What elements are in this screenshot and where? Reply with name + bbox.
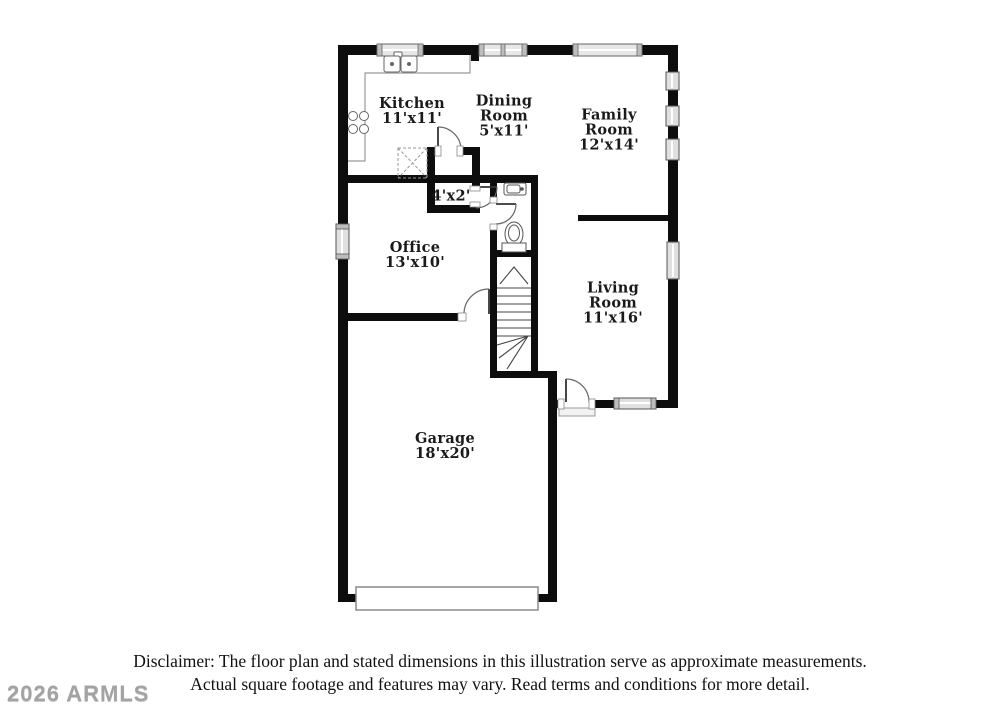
office-bottom-wall bbox=[338, 313, 465, 321]
disclaimer-line1: Disclaimer: The floor plan and stated di… bbox=[0, 650, 1000, 673]
family-window bbox=[573, 44, 642, 56]
stair-left-wall bbox=[490, 224, 497, 378]
garage-dims: 18'x20' bbox=[390, 446, 500, 461]
room-label-family: Family Room 12'x14' bbox=[577, 108, 641, 153]
garage-name: Garage bbox=[390, 431, 500, 446]
dining-name: Dining Room bbox=[472, 94, 536, 124]
office-name: Office bbox=[360, 240, 470, 255]
room-label-closet: 4'x2' bbox=[396, 189, 506, 204]
dining-dims: 5'x11' bbox=[472, 124, 536, 139]
family-dims: 12'x14' bbox=[577, 138, 641, 153]
pantry-cabinet bbox=[398, 148, 427, 178]
family-living-wall bbox=[578, 215, 668, 221]
garage-door bbox=[356, 587, 538, 610]
living-dims: 11'x16' bbox=[581, 311, 645, 326]
wall-stub bbox=[471, 45, 479, 61]
powder-door bbox=[496, 204, 516, 224]
disclaimer-line2: Actual square footage and features may v… bbox=[0, 673, 1000, 696]
closet-dims: 4'x2' bbox=[396, 189, 506, 204]
toilet bbox=[502, 222, 526, 252]
kitchen-name: Kitchen bbox=[357, 96, 467, 111]
room-label-living: Living Room 11'x16' bbox=[581, 281, 645, 326]
office-window bbox=[336, 224, 349, 259]
office-door bbox=[464, 289, 489, 314]
left-wall bbox=[338, 45, 348, 602]
living-name: Living Room bbox=[581, 281, 645, 311]
office-dims: 13'x10' bbox=[360, 255, 470, 270]
kitchen-dims: 11'x11' bbox=[357, 111, 467, 126]
dining-window bbox=[479, 44, 527, 56]
family-name: Family Room bbox=[577, 108, 641, 138]
family-side-windows bbox=[666, 72, 679, 160]
stair-right-wall bbox=[531, 175, 538, 378]
staircase bbox=[497, 267, 531, 369]
living-side-window bbox=[667, 242, 679, 279]
floor-plan-page: Kitchen 11'x11' Dining Room 5'x11' Famil… bbox=[0, 0, 1000, 727]
room-label-garage: Garage 18'x20' bbox=[390, 431, 500, 461]
room-label-dining: Dining Room 5'x11' bbox=[472, 94, 536, 139]
entry-door bbox=[566, 379, 589, 402]
disclaimer-text: Disclaimer: The floor plan and stated di… bbox=[0, 650, 1000, 696]
garage-right-wall bbox=[548, 371, 557, 602]
watermark: 2026 ARMLS bbox=[7, 681, 149, 707]
room-label-kitchen: Kitchen 11'x11' bbox=[357, 96, 467, 126]
room-label-office: Office 13'x10' bbox=[360, 240, 470, 270]
right-wall bbox=[668, 45, 678, 408]
stair-bottom-wall bbox=[490, 371, 557, 378]
mid-wall bbox=[338, 175, 538, 183]
powder-sink bbox=[504, 183, 526, 195]
entry-window bbox=[614, 398, 656, 409]
